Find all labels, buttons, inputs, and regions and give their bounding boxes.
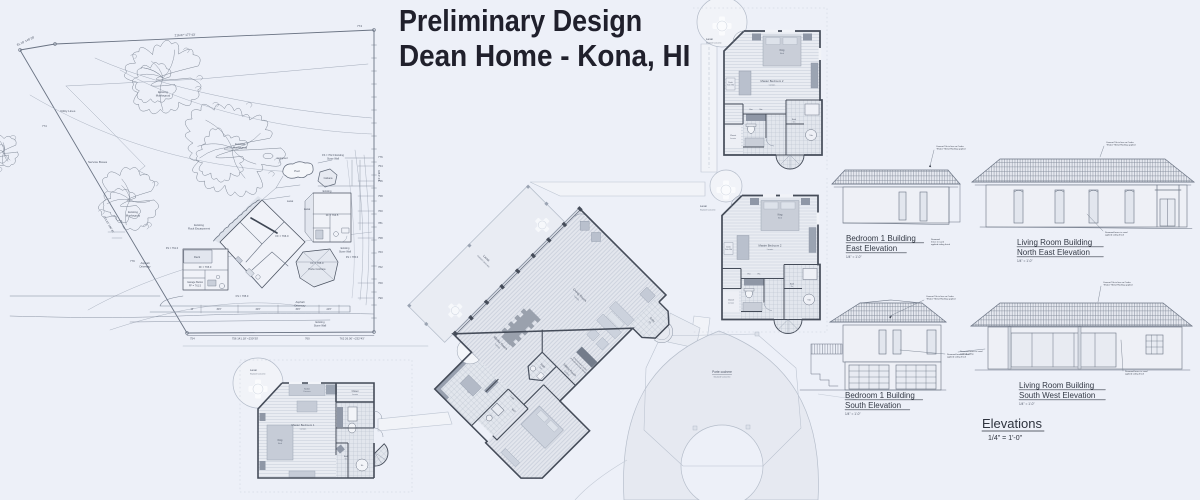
svg-text:FF = 764.5: FF = 764.5 [326,213,339,217]
svg-text:"Shake" Metal Roofing applied: "Shake" Metal Roofing applied [936,148,966,151]
svg-text:Cement Tile in lieu on Cedar: Cement Tile in lieu on Cedar [926,295,954,298]
svg-text:Cabana: Cabana [324,177,333,180]
svg-text:applied siding finish: applied siding finish [1125,374,1145,376]
svg-text:"Shake" Metal Roofing applied: "Shake" Metal Roofing applied [1106,144,1136,147]
svg-text:Dn: Dn [793,122,795,124]
svg-text:FF = 765.0: FF = 765.0 [199,265,212,269]
svg-text:Stained Concrete: Stained Concrete [706,41,722,44]
svg-text:216.67' 177°43': 216.67' 177°43' [175,33,196,38]
svg-text:Lanais: Lanais [730,138,736,140]
svg-text:Porte Cochere: Porte Cochere [308,267,326,271]
svg-text:applied siding: applied siding [960,354,974,356]
svg-text:Cement Tile in lieu on Cedar: Cement Tile in lieu on Cedar [936,145,964,148]
svg-text:754: 754 [190,337,195,341]
svg-text:Living Room Building: Living Room Building [1017,238,1092,247]
svg-text:Stained Concrete: Stained Concrete [714,376,732,379]
svg-text:Lanais: Lanais [767,249,774,251]
svg-text:Lanais: Lanais [728,303,734,305]
svg-text:Lanais: Lanais [769,85,776,87]
svg-text:Living Room Building: Living Room Building [1019,381,1094,390]
svg-text:His: His [758,274,761,276]
svg-text:"Shake" Metal Roofing applied: "Shake" Metal Roofing applied [926,298,956,301]
svg-text:758: 758 [378,236,383,240]
svg-text:Master Bedroom 2: Master Bedroom 2 [760,79,783,83]
svg-text:FS = 761.0: FS = 761.0 [166,247,179,250]
svg-text:Cement Tile in lieu on Cedar: Cement Tile in lieu on Cedar [1106,141,1134,144]
svg-text:1/4" = 1'-0": 1/4" = 1'-0" [988,435,1023,442]
svg-text:Elevations: Elevations [982,416,1042,431]
svg-text:Sh: Sh [361,465,363,467]
svg-text:East Elevation: East Elevation [846,244,897,253]
svg-text:Asphalt: Asphalt [296,300,305,304]
svg-text:Lanai: Lanai [706,37,713,41]
svg-text:Bath: Bath [792,118,796,121]
svg-text:Dresser: Dresser [303,391,310,393]
svg-text:King: King [778,214,783,217]
svg-text:Stained Concrete: Stained Concrete [700,208,716,211]
svg-text:Lanais: Lanais [352,394,358,396]
svg-text:Lanai: Lanai [700,204,707,208]
svg-text:applied siding finish: applied siding finish [1105,235,1125,237]
svg-text:763: 763 [378,250,383,254]
svg-text:774: 774 [42,124,47,128]
svg-text:1/4" = 1'-0": 1/4" = 1'-0" [1019,402,1035,406]
svg-text:760: 760 [305,337,310,341]
svg-text:1/4" = 1'-0": 1/4" = 1'-0" [1017,259,1033,263]
svg-text:1/4" = 1'-0": 1/4" = 1'-0" [846,255,862,259]
svg-text:779: 779 [130,259,135,263]
svg-text:30'0": 30'0" [295,309,300,311]
svg-text:applied siding finish: applied siding finish [947,357,967,359]
svg-text:Dn: Dn [345,459,347,461]
svg-text:Existing: Existing [315,320,325,324]
svg-text:Monkeypod: Monkeypod [156,94,171,98]
svg-text:754: 754 [378,164,383,168]
svg-text:FS = 765.0: FS = 765.0 [346,256,359,259]
svg-text:Porte cochere: Porte cochere [712,370,732,374]
svg-text:FF = 765.0: FF = 765.0 [310,261,324,265]
svg-text:758: 758 [378,194,383,198]
svg-text:King: King [278,439,283,442]
svg-text:Stained Concrete: Stained Concrete [250,372,266,375]
svg-text:applied siding finish: applied siding finish [931,244,951,246]
svg-text:774: 774 [357,24,362,28]
svg-text:Utility Lines: Utility Lines [60,109,76,113]
svg-text:Bedroom 1 Building: Bedroom 1 Building [845,391,915,400]
svg-text:Master Bedroom 2: Master Bedroom 2 [758,244,781,248]
svg-text:756 141.18' <230°30': 756 141.18' <230°30' [232,337,259,341]
svg-text:FF = 761.5: FF = 761.5 [189,285,202,288]
svg-text:Side Bfd: Side Bfd [727,84,734,86]
svg-text:790: 790 [378,296,383,300]
svg-text:His: His [760,109,763,111]
svg-text:King: King [780,49,785,52]
svg-text:Bath: Bath [790,283,794,286]
svg-text:762: 762 [378,265,383,269]
svg-text:Lanai: Lanai [304,207,311,211]
svg-text:Bath: Bath [344,455,348,458]
svg-text:Stone Wall: Stone Wall [339,251,351,254]
svg-text:1/4" = 1'-0": 1/4" = 1'-0" [845,412,861,416]
svg-text:Cesspool: Cesspool [277,156,288,160]
svg-text:760: 760 [378,209,383,213]
svg-text:Cement Tile in lieu on Cedar: Cement Tile in lieu on Cedar [1103,281,1131,284]
svg-text:Lanais: Lanais [300,428,307,430]
svg-text:Closet: Closet [352,390,359,393]
svg-text:Monkeypod: Monkeypod [126,214,141,218]
svg-text:24'0": 24'0" [326,309,331,311]
svg-text:Pool: Pool [294,169,300,173]
svg-text:Bedroom 1 Building: Bedroom 1 Building [846,234,916,243]
svg-text:756: 756 [378,179,383,183]
svg-text:South Elevation: South Elevation [845,401,901,410]
svg-text:"Shake" Metal Roofing applied: "Shake" Metal Roofing applied [1103,284,1133,287]
svg-text:781: 781 [378,221,383,225]
svg-text:Lanai: Lanai [250,368,257,372]
svg-text:FF = 766.0: FF = 766.0 [275,234,289,238]
svg-text:North East Elevation: North East Elevation [1017,248,1090,257]
svg-text:Rock Escarpment: Rock Escarpment [188,227,210,231]
svg-text:760: 760 [378,281,383,285]
svg-text:Master Bedroom 1: Master Bedroom 1 [291,423,314,427]
svg-text:Deck: Deck [194,255,201,259]
svg-text:Monkeypod: Monkeypod [233,146,248,150]
svg-text:Driveway: Driveway [139,265,151,269]
svg-text:Asphalt: Asphalt [141,261,150,265]
svg-text:34'0": 34'0" [255,309,260,311]
svg-text:South West Elevation: South West Elevation [1019,391,1095,400]
svg-text:Closet: Closet [728,299,735,302]
svg-text:762 26.00' <232°43': 762 26.00' <232°43' [340,337,365,341]
svg-text:Lanai: Lanai [287,199,294,203]
svg-text:Her: Her [747,273,750,276]
svg-text:Dn: Dn [791,286,793,288]
svg-text:Some: Some [304,389,310,391]
svg-text:Her: Her [749,108,752,111]
svg-text:Closet: Closet [730,134,737,137]
svg-text:Stone Wall: Stone Wall [314,324,327,328]
svg-text:Stone Wall: Stone Wall [327,158,339,161]
svg-text:776: 776 [378,155,383,159]
svg-text:Driveway: Driveway [294,304,306,308]
svg-text:30'0": 30'0" [216,309,221,311]
svg-text:Side Bfd: Side Bfd [725,249,732,251]
svg-text:Service Boxes: Service Boxes [88,160,108,164]
svg-text:FS = 765.0: FS = 765.0 [236,294,249,298]
